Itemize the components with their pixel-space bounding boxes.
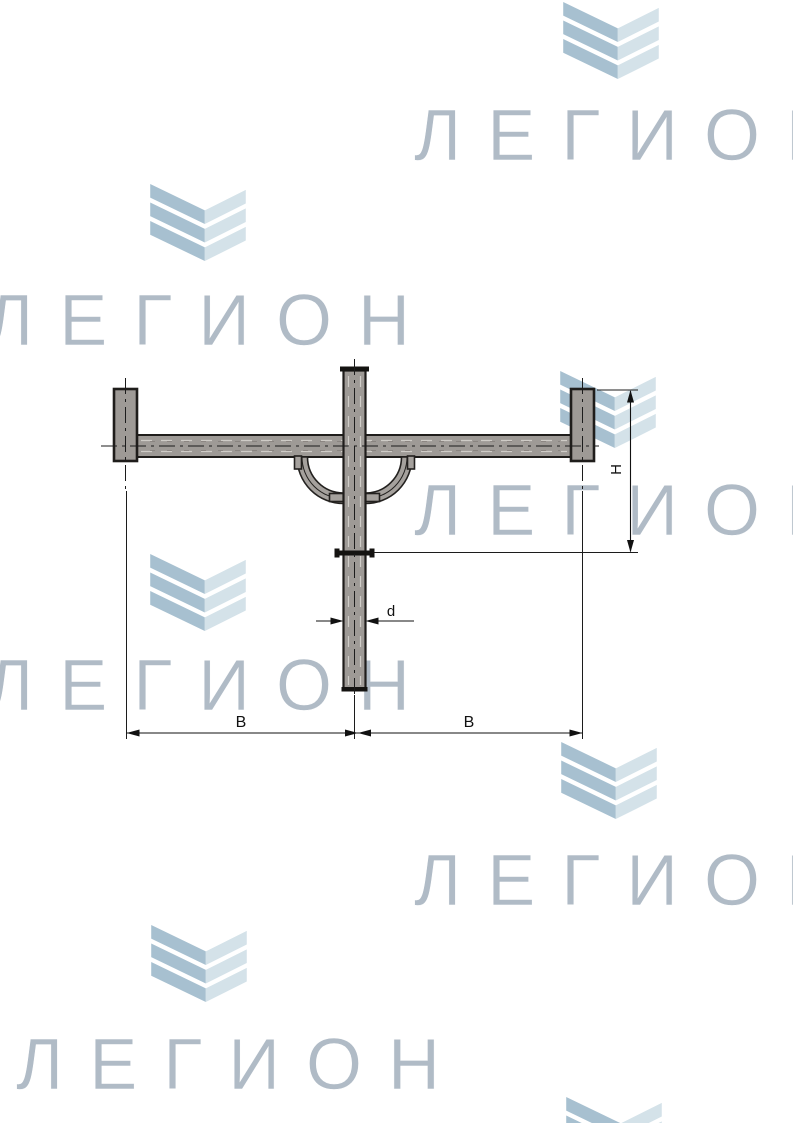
dimension-b-left-label: B [236,714,247,731]
dimension-b-left: B [127,714,359,737]
dimension-b-right: B [358,714,583,737]
dimension-b-right-label: B [464,714,475,731]
dimension-h: H [608,390,634,553]
dimension-d-label: d [387,603,395,620]
drawing-sheet: ЛЕГИОН ЛЕГИОН ЛЕГИОН ЛЕГИОН ЛЕГИОН ЛЕГИО… [0,0,793,1123]
right-gusset [366,456,415,504]
dimension-h-label: H [608,464,625,475]
crossarm-technical-drawing: H d B B [0,0,793,1123]
left-gusset [295,456,344,504]
